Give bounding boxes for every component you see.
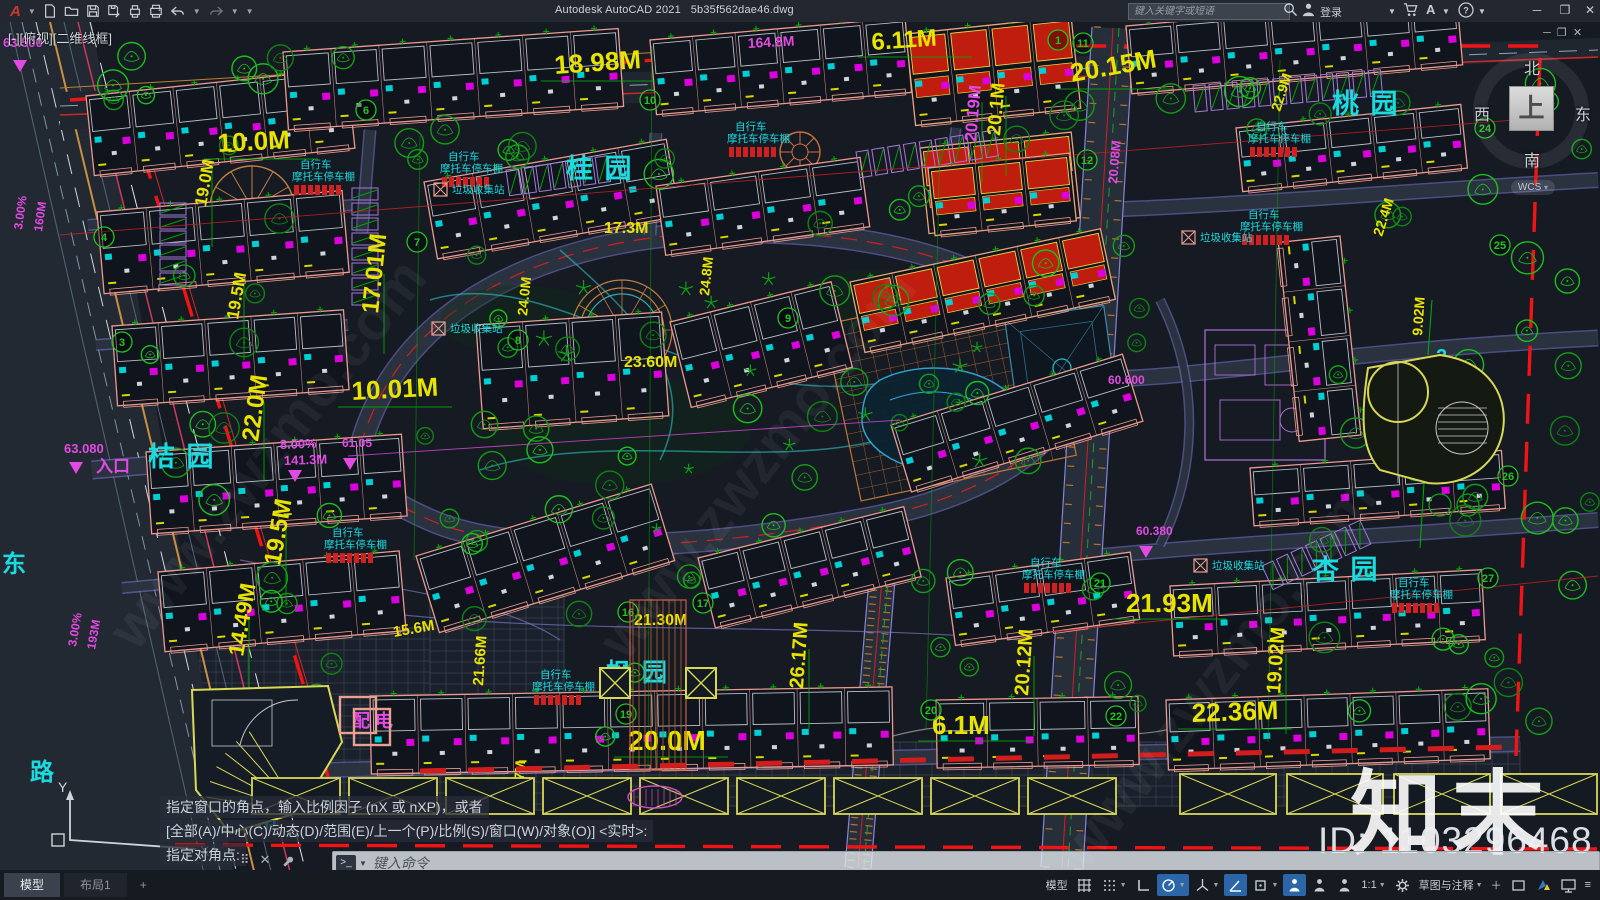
bubble-number: 26 — [1498, 466, 1518, 486]
toolbar-overflow-icon[interactable]: ▼ — [246, 7, 254, 16]
isodraft-toggle[interactable]: ▼ — [1191, 874, 1223, 896]
grade-label: 配 电 — [352, 710, 393, 731]
viewcube-south[interactable]: 南 — [1457, 147, 1600, 171]
viewcube-north[interactable]: 北 — [1457, 55, 1600, 79]
graphics-performance-icon[interactable] — [1532, 874, 1555, 896]
command-prompt-icon[interactable]: >_ — [336, 855, 356, 871]
viewcube-east[interactable]: 东 — [1575, 101, 1591, 125]
svg-text:自行车: 自行车 — [332, 526, 364, 539]
svg-text:10: 10 — [644, 95, 656, 107]
dimension-label: 26.17M — [786, 621, 813, 689]
viewcube-west[interactable]: 西 — [1474, 101, 1490, 125]
dimension-label: 20.0M — [628, 725, 706, 756]
search-icon[interactable] — [1283, 2, 1298, 17]
customization-menu-icon[interactable]: ≡ — [1582, 874, 1594, 896]
svg-text:摩托车停车棚: 摩托车停车棚 — [1248, 132, 1311, 145]
chevron-down-icon[interactable]: ▼ — [1120, 882, 1127, 889]
undo-icon[interactable] — [170, 5, 186, 18]
bubble-number: 11 — [1073, 33, 1093, 53]
dimension-label: 6.11M — [871, 24, 938, 55]
svg-text:自行车: 自行车 — [300, 158, 332, 171]
bubble-number: 27 — [1478, 568, 1498, 588]
workspace-gear-icon[interactable] — [1391, 874, 1414, 896]
quick-access-toolbar: A ▼ ▼ ▼ ▼ — [0, 3, 254, 20]
grid-toggle[interactable] — [1073, 874, 1096, 896]
dimension-label: 18.98M — [553, 44, 642, 80]
svg-text:3: 3 — [119, 337, 125, 349]
svg-text:27: 27 — [1482, 573, 1494, 585]
svg-text:摩托车停车棚: 摩托车停车棚 — [532, 680, 595, 693]
viewport-controls[interactable]: [-][俯视][二维线框] — [8, 28, 112, 47]
svg-text:1: 1 — [1055, 35, 1061, 47]
chevron-down-icon[interactable]: ▼ — [1388, 7, 1396, 16]
dimension-label: 23.60M — [624, 354, 677, 371]
svg-text:垃圾收集站: 垃圾收集站 — [450, 322, 503, 335]
svg-text:摩托车停车棚: 摩托车停车棚 — [440, 162, 503, 175]
svg-text:摩托车停车棚: 摩托车停车棚 — [324, 538, 387, 551]
svg-text:自行车: 自行车 — [735, 120, 767, 133]
svg-text:20: 20 — [925, 705, 937, 717]
annotation-scale-icon[interactable] — [1333, 874, 1356, 896]
autodesk-a-icon[interactable]: A — [1426, 2, 1435, 17]
garden-label: 桔 园 — [148, 442, 216, 472]
chevron-down-icon[interactable]: ▼ — [1442, 7, 1450, 16]
chevron-down-icon[interactable]: ▼ — [1478, 7, 1486, 16]
bubble-number: 1 — [1048, 30, 1068, 50]
signin-button[interactable]: 登录 — [1320, 4, 1342, 20]
minimize-button[interactable]: ─ — [1524, 0, 1550, 20]
svg-text:11: 11 — [1077, 38, 1089, 50]
search-input[interactable]: 键入关键字或短语 — [1128, 3, 1290, 20]
auto-annotation-scale-toggle[interactable] — [1308, 874, 1331, 896]
svg-text:垃圾收集站: 垃圾收集站 — [1200, 231, 1253, 244]
bubble-number: 22 — [1106, 706, 1126, 726]
chevron-down-icon[interactable]: ▼ — [1213, 882, 1220, 889]
workspace-switcher[interactable]: 草图与注释▼ — [1416, 874, 1486, 896]
clean-screen-icon[interactable] — [1557, 874, 1580, 896]
viewcube[interactable]: 上 北 南 西 东 WCS ▾ — [1457, 37, 1600, 187]
svg-text:摩托车停车棚: 摩托车停车棚 — [1390, 588, 1453, 601]
grade-label: 61.05 — [342, 436, 372, 450]
user-icon[interactable] — [1301, 2, 1316, 17]
new-file-icon[interactable] — [43, 4, 57, 18]
command-history-line: 指定对角点: — [160, 844, 246, 866]
drag-grip-icon[interactable]: ⠿ — [240, 852, 250, 868]
chevron-down-icon[interactable]: ▼ — [1379, 882, 1386, 889]
svg-text:自行车: 自行车 — [1030, 556, 1062, 569]
command-history-line: 指定窗口的角点，输入比例因子 (nX 或 nXP)，或者 — [160, 796, 489, 818]
chevron-down-icon[interactable]: ▼ — [231, 7, 239, 16]
garden-label: 桃 园 — [1332, 89, 1400, 119]
chevron-down-icon[interactable]: ▼ — [1179, 882, 1186, 889]
viewcube-top-face[interactable]: 上 — [1509, 86, 1554, 131]
dimension-label: 20.12M — [1011, 628, 1038, 696]
svg-text:?: ? — [1463, 6, 1469, 16]
svg-text:自行车: 自行车 — [540, 668, 572, 681]
svg-text:22: 22 — [1110, 711, 1122, 723]
road-name-label: 东 — [2, 550, 26, 578]
ortho-toggle[interactable] — [1132, 874, 1155, 896]
svg-text:12: 12 — [1081, 155, 1093, 167]
bubble-number: 9 — [778, 308, 798, 328]
close-button[interactable]: ✕ — [1580, 0, 1600, 20]
svg-text:摩托车停车棚: 摩托车停车棚 — [1022, 568, 1085, 581]
maximize-button[interactable]: ❐ — [1552, 0, 1578, 20]
title-bar: A ▼ ▼ ▼ ▼ Autodesk AutoCAD 2021 5b35f562… — [0, 0, 1600, 22]
save-as-icon[interactable] — [107, 4, 121, 18]
app-menu-icon[interactable]: A — [6, 3, 21, 20]
customization-plus-button[interactable]: ＋ — [1488, 874, 1505, 896]
polar-tracking-toggle[interactable]: ▼ — [1157, 874, 1189, 896]
save-icon[interactable] — [86, 4, 100, 18]
svg-text:摩托车停车棚: 摩托车停车棚 — [727, 132, 790, 145]
command-history-line: [全部(A)/中心(C)/动态(D)/范围(E)/上一个(P)/比例(S)/窗口… — [160, 820, 653, 842]
chevron-down-icon[interactable]: ▼ — [28, 7, 36, 16]
svg-text:8: 8 — [515, 335, 521, 347]
garden-label: 桂 园 — [566, 154, 634, 184]
bubble-number: 3 — [112, 332, 132, 352]
bubble-number: 8 — [508, 330, 528, 350]
redo-icon[interactable] — [208, 5, 224, 18]
svg-text:自行车: 自行车 — [448, 150, 480, 163]
dimension-label: 21.93M — [1126, 588, 1213, 618]
print-icon[interactable] — [149, 4, 163, 18]
svg-text:自行车: 自行车 — [1398, 576, 1430, 589]
open-folder-icon[interactable] — [64, 4, 79, 18]
status-model-toggle[interactable]: 模型 — [1043, 874, 1071, 896]
wrench-icon[interactable] — [280, 853, 295, 868]
svg-text:摩托车停车棚: 摩托车停车棚 — [292, 170, 355, 183]
chevron-down-icon[interactable]: ▼ — [193, 7, 201, 16]
grade-label: 入口 — [96, 457, 130, 476]
svg-text:7: 7 — [414, 237, 420, 249]
bubble-number: 21 — [1090, 573, 1110, 593]
help-icon[interactable]: ? — [1458, 2, 1474, 18]
tab-model[interactable]: 模型 — [4, 873, 60, 897]
autocad-window: 18.98M6.11M20.15M10.0M17.3M20.1M20.19M22… — [0, 0, 1600, 900]
svg-text:6: 6 — [363, 105, 369, 117]
bubble-number: 7 — [407, 232, 427, 252]
dimension-label: 9.02M — [1409, 296, 1428, 336]
chevron-down-icon[interactable]: ▼ — [359, 859, 367, 868]
bubble-number: 10 — [640, 90, 660, 110]
bubble-number: 12 — [1077, 150, 1097, 170]
svg-text:Y: Y — [58, 779, 68, 795]
close-icon[interactable]: ✕ — [260, 852, 271, 868]
snap-toggle[interactable]: ▼ — [1098, 874, 1130, 896]
dimension-label: 6.1M — [932, 710, 990, 740]
svg-text:25: 25 — [1494, 240, 1506, 252]
grade-label: 164.8M — [747, 33, 794, 51]
command-bar-grip[interactable]: ⠿ ✕ — [240, 852, 295, 868]
plot-icon[interactable] — [128, 4, 142, 18]
status-bar: 模型 布局1 + 模型▼▼▼▼1:1▼草图与注释▼＋≡ — [0, 870, 1600, 900]
grade-label: 60.380 — [1136, 524, 1173, 538]
svg-text:21: 21 — [1094, 578, 1106, 590]
tab-layout1[interactable]: 布局1 — [64, 873, 127, 897]
bubble-number: 4 — [94, 227, 114, 247]
annotation-visibility-toggle[interactable] — [1283, 874, 1306, 896]
grade-label: 63.080 — [64, 441, 104, 456]
chevron-down-icon[interactable]: ▼ — [1271, 882, 1278, 889]
object-snap-tracking-toggle[interactable] — [1224, 874, 1247, 896]
bubble-number: 25 — [1490, 235, 1510, 255]
status-toolbar: 模型▼▼▼▼1:1▼草图与注释▼＋≡ — [1043, 874, 1600, 896]
svg-text:垃圾收集站: 垃圾收集站 — [452, 183, 505, 196]
svg-text:自行车: 自行车 — [1248, 208, 1280, 221]
annotation-scale-value[interactable]: 1:1▼ — [1358, 874, 1388, 896]
window-title: Autodesk AutoCAD 2021 5b35f562dae46.dwg — [555, 4, 794, 16]
road-name-label: 路 — [30, 758, 55, 786]
bubble-number: 6 — [356, 100, 376, 120]
dimension-label: 10.0M — [217, 124, 291, 158]
svg-text:自行车: 自行车 — [1256, 120, 1288, 133]
wcs-button[interactable]: WCS ▾ — [1511, 180, 1555, 195]
chevron-down-icon[interactable]: ▼ — [1476, 882, 1483, 889]
object-snap-toggle[interactable]: ▼ — [1249, 874, 1281, 896]
cart-icon[interactable] — [1403, 2, 1419, 17]
svg-text:17: 17 — [697, 598, 709, 610]
dimension-label: 17.3M — [604, 220, 648, 237]
bubble-number: 20 — [921, 700, 941, 720]
svg-text:9: 9 — [785, 313, 791, 325]
svg-text:4: 4 — [101, 232, 108, 244]
isolate-objects-icon[interactable] — [1507, 874, 1530, 896]
grade-label: 60.600 — [1108, 373, 1145, 387]
dimension-label: 21.66M — [470, 635, 490, 686]
add-layout-button[interactable]: + — [131, 873, 156, 897]
svg-text:26: 26 — [1502, 471, 1514, 483]
